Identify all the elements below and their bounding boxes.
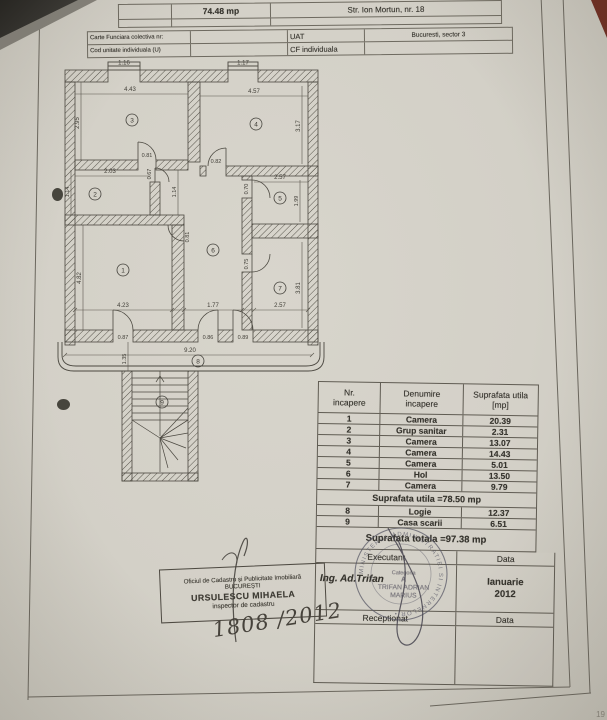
dim-room7-width: 2.57 — [274, 303, 286, 309]
room-number-2: 2 — [93, 191, 97, 198]
dim-window-left: 1.16 — [118, 61, 130, 67]
plan-walls — [65, 70, 318, 481]
dim-room5-width: 2.57 — [274, 175, 286, 181]
cf-individuala-label: CF individuala — [288, 42, 365, 55]
row-name: Casa scarii — [379, 517, 461, 528]
dim-door2: 0.67 — [147, 169, 153, 180]
dim-loggia-width: 9.20 — [184, 348, 196, 354]
data-label: Data — [457, 551, 554, 566]
date-month: Ianuarie — [487, 576, 524, 589]
uat-value: Bucuresti, sector 3 — [365, 28, 512, 42]
row-area: 13.50 — [462, 470, 536, 481]
executant-label: Executant — [316, 549, 457, 564]
room-number-3: 3 — [130, 117, 134, 124]
dim-room4-height: 3.17 — [296, 120, 302, 132]
floor-plan: 1.16 1.17 4.43 4.57 2.95 3.17 0.81 0.82 … — [50, 58, 330, 488]
cf-empty-cell — [191, 43, 288, 56]
row-nr: 3 — [318, 435, 381, 446]
room-area-table: Nr. incapere Denumire incapere Suprafata… — [313, 381, 558, 687]
dim-room4-width: 4.57 — [248, 89, 260, 95]
row-nr: 5 — [318, 457, 381, 468]
cod-unitate-label: Cod unitate individuala (U) — [88, 44, 191, 57]
dim-door5: 0.70 — [244, 184, 250, 195]
receptionat-empty-cell — [314, 624, 456, 684]
executant-name: Ing. Ad.Trifan — [320, 573, 384, 585]
room-numbers: 1 2 3 4 5 6 7 8 9 — [89, 114, 286, 408]
page-mark: 19 — [596, 710, 605, 719]
row-name: Camera — [381, 414, 463, 425]
dim-hall-width: 1.77 — [207, 303, 219, 309]
total-area-value: 74.48 mp — [172, 3, 271, 18]
row-nr: 6 — [317, 468, 380, 479]
room-number-1: 1 — [121, 267, 125, 274]
dim-hall-door: 0.81 — [185, 232, 191, 243]
signature-table: Executant Data Ing. Ad.Trifan Categoria … — [313, 549, 555, 687]
dim-loggia-height: 1.35 — [122, 354, 128, 365]
dim-room1-height: 4.82 — [77, 272, 83, 284]
dim-door-b2: 0.86 — [203, 335, 214, 341]
room-number-8: 8 — [196, 358, 200, 365]
receptionat-date-empty-cell — [455, 626, 553, 686]
dim-room5-height: 1.99 — [294, 196, 300, 207]
row-area: 12.37 — [462, 507, 536, 518]
dim-door3: 0.81 — [142, 153, 153, 159]
carte-funciara-label: Carte Funciara colectiva nr: — [88, 31, 191, 44]
row-nr: 4 — [318, 446, 381, 457]
row-area: 20.39 — [463, 415, 537, 426]
row-nr: 8 — [317, 505, 380, 516]
row-nr: 2 — [318, 424, 381, 435]
col-header-nr-line1: Nr. — [344, 387, 355, 397]
dim-door-b3: 0.89 — [238, 335, 249, 341]
col-header-nr: Nr. incapere — [319, 382, 382, 413]
header-table-cf: Carte Funciara colectiva nr: UAT Bucures… — [87, 27, 513, 58]
executant-value-row: Ing. Ad.Trifan Categoria A TRIFAN ADRIAN… — [315, 563, 554, 614]
header-cell-empty — [271, 16, 501, 25]
punch-hole-bottom — [57, 399, 70, 410]
col-header-nr-line2: incapere — [333, 397, 366, 408]
cf-empty-cell — [191, 30, 288, 43]
dim-room1-width: 4.23 — [117, 303, 129, 309]
row-area: 5.01 — [462, 459, 536, 470]
executant-stamp: Categoria A TRIFAN ADRIAN MARIUS — [378, 570, 430, 601]
row-nr: 7 — [317, 479, 380, 490]
header-cell-empty — [119, 19, 172, 27]
col-header-area-line2: [mp] — [492, 400, 509, 410]
address-value: Str. Ion Mortun, nr. 18 — [271, 1, 501, 17]
uat-label: UAT — [288, 29, 365, 42]
punch-hole-top — [52, 188, 63, 201]
row-area: 13.07 — [463, 437, 537, 448]
dim-room2-width: 2.03 — [104, 169, 116, 175]
dim-room3-width: 4.43 — [124, 87, 136, 93]
dim-door7: 0.75 — [244, 259, 250, 270]
row-area: 14.43 — [462, 448, 536, 459]
row-name: Camera — [380, 480, 462, 491]
dim-room3-height: 2.95 — [75, 117, 81, 129]
room-number-9: 9 — [160, 399, 164, 406]
dim-door4: 0.82 — [211, 159, 222, 165]
row-name: Logie — [379, 506, 461, 517]
row-area: 6.51 — [461, 518, 535, 529]
row-name: Grup sanitar — [381, 425, 463, 436]
date-cell: Ianuarie 2012 — [456, 565, 554, 613]
receptionat-empty-row — [314, 624, 553, 686]
dim-room7-height: 3.81 — [296, 282, 302, 294]
dim-corridor-width: 1.14 — [172, 187, 178, 198]
room-number-4: 4 — [254, 121, 258, 128]
row-name: Hol — [380, 469, 462, 480]
loggia-outline — [58, 342, 324, 371]
row-nr: 1 — [318, 413, 381, 424]
room-number-6: 6 — [211, 247, 215, 254]
room-number-5: 5 — [278, 195, 282, 202]
dim-room2-height: 1.14 — [65, 187, 71, 198]
dim-door-b1: 0.87 — [118, 335, 129, 341]
col-header-area: Suprafata utila [mp] — [463, 384, 538, 415]
row-area: 9.79 — [462, 481, 536, 492]
col-header-name: Denumire incapere — [381, 383, 464, 414]
total-row: Suprafata totala =97.38 mp — [316, 527, 535, 551]
row-area: 2.31 — [463, 426, 537, 437]
header-cell-empty — [119, 4, 172, 19]
header-table-area: 74.48 mp Str. Ion Mortun, nr. 18 — [118, 0, 502, 28]
room-list-table: Nr. incapere Denumire incapere Suprafata… — [315, 381, 539, 552]
cf-empty-cell — [365, 41, 512, 55]
col-header-name-line1: Denumire — [403, 388, 440, 399]
room-table-header: Nr. incapere Denumire incapere Suprafata… — [318, 382, 537, 416]
row-name: Camera — [380, 447, 462, 458]
row-name: Camera — [380, 458, 462, 469]
col-header-area-line1: Suprafata utila — [473, 389, 528, 400]
row-name: Camera — [380, 436, 462, 447]
dim-window-right: 1.17 — [237, 61, 249, 67]
scanned-cadastral-document: 74.48 mp Str. Ion Mortun, nr. 18 Carte F… — [0, 0, 607, 720]
data-label-2: Data — [456, 612, 553, 627]
executant-stamp-line4: MARIUS — [378, 592, 429, 601]
row-nr: 9 — [317, 516, 380, 527]
staircase — [132, 371, 188, 472]
header-cell-empty — [172, 18, 271, 26]
date-year: 2012 — [494, 589, 515, 602]
col-header-name-line2: incapere — [405, 398, 438, 409]
room-number-7: 7 — [278, 285, 282, 292]
